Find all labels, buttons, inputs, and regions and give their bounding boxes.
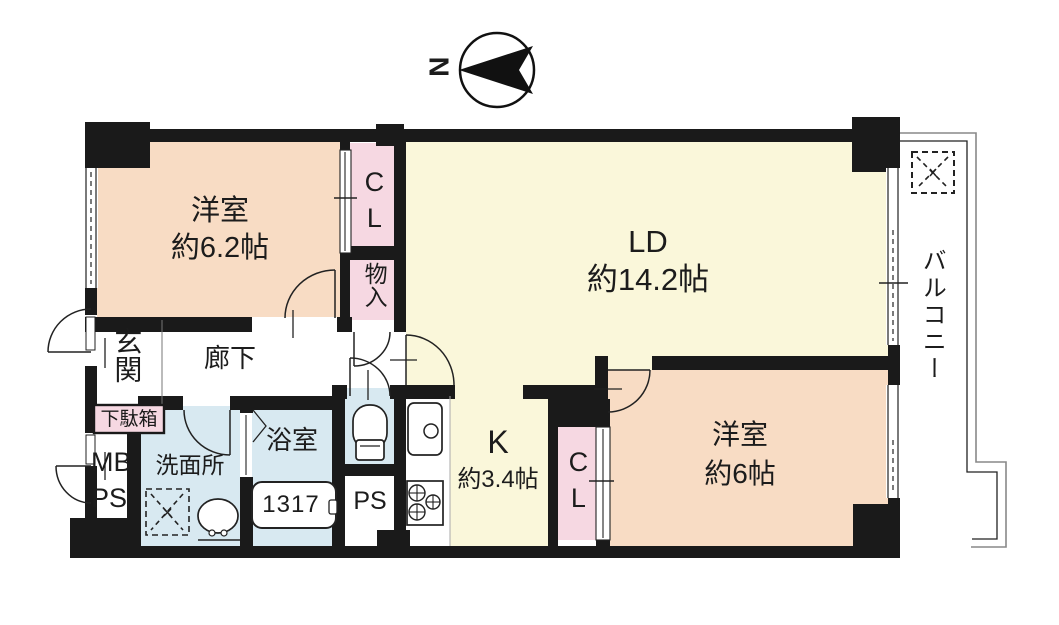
compass-north-label: N — [424, 52, 453, 82]
compass-icon — [459, 33, 534, 107]
kitchen-sink-icon — [408, 403, 442, 455]
pipe-space-label: PS — [344, 488, 396, 514]
closet-bottom-label: CL — [564, 447, 592, 519]
pillar-bottom-left — [70, 518, 128, 558]
washroom-label: 洗面所 — [140, 453, 240, 477]
bedroom2-window — [886, 385, 901, 498]
meter-box-label-mb: MB — [91, 448, 132, 476]
bedroom2-size: 約6帖 — [650, 459, 830, 488]
bedroom1-window — [84, 168, 98, 288]
bedroom1-floor — [97, 142, 342, 317]
closet-top-label: CL — [360, 167, 388, 239]
living-size: 約14.2帖 — [543, 264, 753, 297]
escape-hatch-icon — [912, 152, 954, 193]
toilet-icon — [353, 405, 387, 460]
floor-plan-drawing — [0, 0, 1059, 625]
storage-label: 物入 — [362, 262, 386, 308]
entrance-label: 玄関 — [112, 327, 141, 383]
bathroom-label: 浴室 — [250, 427, 334, 454]
floor-plan: N 洋室 約6.2帖 LD 約14.2帖 CL 物入 玄関 廊下 下駄箱 MB … — [0, 0, 1059, 625]
balcony-label: バルコニー — [919, 248, 944, 383]
kitchen-name: K — [460, 426, 536, 460]
kitchen-size: 約3.4帖 — [442, 467, 554, 492]
bedroom1-name: 洋室 — [130, 196, 310, 226]
bedroom1-size: 約6.2帖 — [130, 233, 310, 263]
pillar-bottom-right — [853, 504, 900, 558]
hallway-label: 廊下 — [204, 345, 256, 372]
meter-box-label-ps: PS — [91, 484, 127, 512]
balcony-outline — [900, 133, 1006, 547]
bathtub-size-label: 1317 — [255, 492, 327, 517]
shoe-cabinet-label: 下駄箱 — [95, 410, 163, 430]
stove-icon — [407, 481, 443, 525]
pillar-top-right — [852, 117, 900, 172]
entrance-door — [48, 309, 91, 352]
storage-door — [354, 332, 390, 366]
pillar-top-left — [85, 122, 150, 168]
bedroom2-name: 洋室 — [650, 420, 830, 449]
living-name: LD — [558, 226, 738, 259]
